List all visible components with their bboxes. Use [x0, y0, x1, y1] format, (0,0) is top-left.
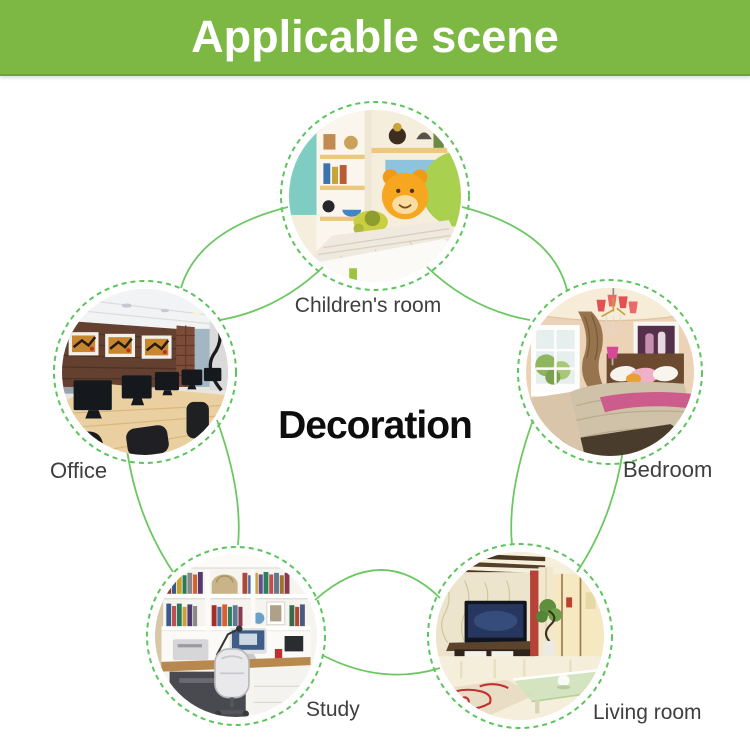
link-office-study-inner: [217, 420, 239, 545]
study-label: Study: [306, 698, 360, 722]
living-room-label: Living room: [593, 701, 702, 725]
link-bedroom-living-outer: [577, 450, 623, 572]
study-illustration: [155, 555, 317, 717]
children-room-label: Children's room: [268, 294, 468, 318]
bedroom-photo: [526, 288, 694, 456]
office-photo: [62, 289, 228, 455]
study-photo: [155, 555, 317, 717]
office-illustration: [62, 289, 228, 455]
scene-diagram: Children's room Bedroom Living room Stud…: [0, 0, 750, 750]
office-label: Office: [50, 458, 107, 484]
link-children-bedroom-outer: [462, 207, 567, 290]
link-office-children-outer: [181, 207, 288, 288]
living-room-photo: [436, 552, 604, 720]
children-room-illustration: [289, 110, 461, 282]
link-office-study-outer: [127, 450, 173, 572]
children-room-photo: [289, 110, 461, 282]
link-study-living-inner: [315, 570, 440, 600]
link-bedroom-living-inner: [511, 420, 533, 545]
page: Applicable scene: [0, 0, 750, 750]
bedroom-illustration: [526, 288, 694, 456]
center-title: Decoration: [258, 404, 492, 448]
living-room-illustration: [436, 552, 604, 720]
bedroom-label: Bedroom: [623, 457, 712, 483]
link-study-living-outer: [322, 655, 440, 675]
